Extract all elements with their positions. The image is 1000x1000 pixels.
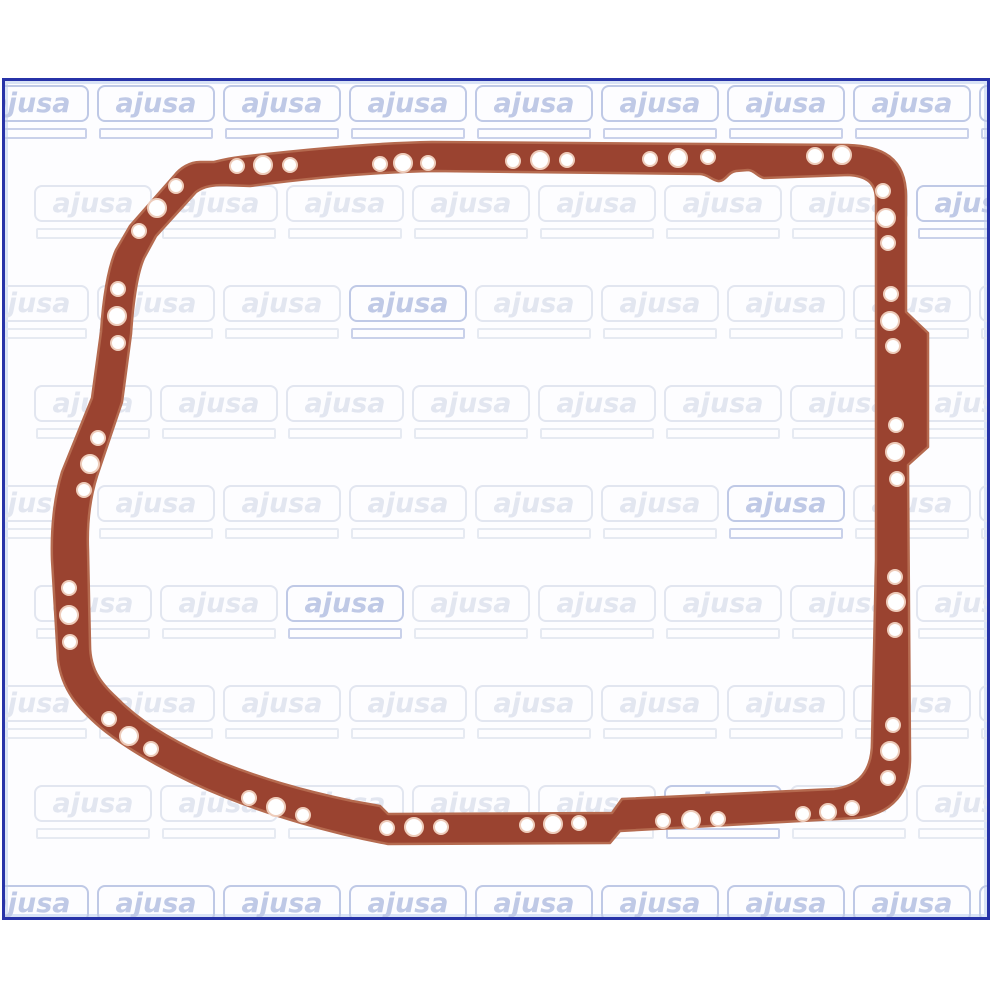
watermark-brand-text: ajusa [97, 485, 215, 522]
watermark-logo: ajusa [727, 285, 845, 339]
watermark-brand-text: ajusa [538, 585, 656, 622]
watermark-brand-text: ajusa [5, 285, 89, 322]
watermark-logo: ajusa [727, 485, 845, 539]
watermark-brand-text: ajusa [349, 85, 467, 122]
watermark-brand-text: ajusa [853, 485, 971, 522]
watermark-brand-text: ajusa [412, 385, 530, 422]
watermark-underline-bar [729, 528, 843, 539]
watermark-underline-bar [225, 128, 339, 139]
watermark-logo: ajusa [97, 885, 215, 917]
watermark-brand-text: ajusa [538, 185, 656, 222]
watermark-logo: ajusa [853, 485, 971, 539]
watermark-logo: ajusa [160, 185, 278, 239]
watermark-underline-bar [666, 828, 780, 839]
watermark-underline-bar [99, 528, 213, 539]
watermark-underline-bar [981, 328, 987, 339]
watermark-brand-text: ajusa [601, 685, 719, 722]
watermark-logo: ajusa [664, 585, 782, 639]
watermark-underline-bar [477, 328, 591, 339]
watermark-underline-bar [477, 528, 591, 539]
watermark-brand-text: ajusa [34, 185, 152, 222]
watermark-underline-bar [792, 228, 906, 239]
watermark-brand-text: ajusa [223, 285, 341, 322]
watermark-logo: ajusa [601, 685, 719, 739]
watermark-brand-text: ajusa [601, 885, 719, 917]
watermark-underline-bar [414, 228, 528, 239]
watermark-logo: ajusa [790, 385, 908, 439]
watermark-brand-text: ajusa [916, 785, 987, 822]
watermark-underline-bar [414, 428, 528, 439]
watermark-logo: ajusa [349, 85, 467, 139]
watermark-underline-bar [225, 728, 339, 739]
watermark-brand-text: ajusa [160, 385, 278, 422]
watermark-logo: ajusa [601, 285, 719, 339]
watermark-underline-bar [351, 528, 465, 539]
watermark-brand-text: ajusa [664, 585, 782, 622]
watermark-underline-bar [162, 428, 276, 439]
watermark-brand-text: ajusa [475, 85, 593, 122]
watermark-logo: ajusa [412, 585, 530, 639]
watermark-brand-text: ajusa [916, 585, 987, 622]
watermark-brand-text: ajusa [790, 585, 908, 622]
watermark-underline-bar [5, 728, 87, 739]
watermark-logo: ajusa [34, 785, 152, 839]
watermark-underline-bar [603, 728, 717, 739]
watermark-pattern: ajusaajusaajusaajusaajusaajusaajusaajusa… [5, 81, 987, 917]
watermark-logo: ajusa [475, 85, 593, 139]
watermark-logo: ajusa [97, 685, 215, 739]
watermark-underline-bar [603, 328, 717, 339]
watermark-brand-text: ajusa [286, 185, 404, 222]
watermark-logo: ajusa [160, 585, 278, 639]
watermark-underline-bar [855, 328, 969, 339]
watermark-logo: ajusa [853, 285, 971, 339]
watermark-underline-bar [288, 628, 402, 639]
watermark-underline-bar [36, 628, 150, 639]
watermark-brand-text: ajusa [538, 785, 656, 822]
watermark-logo: ajusa [916, 785, 987, 839]
watermark-brand-text: ajusa [601, 85, 719, 122]
watermark-brand-text: ajusa [727, 485, 845, 522]
watermark-logo: ajusa [5, 885, 89, 917]
watermark-logo: ajusa [538, 585, 656, 639]
watermark-brand-text: ajusa [727, 885, 845, 917]
watermark-underline-bar [540, 428, 654, 439]
watermark-logo: ajusa [349, 285, 467, 339]
watermark-logo: ajusa [979, 685, 987, 739]
watermark-brand-text: ajusa [349, 285, 467, 322]
watermark-logo: ajusa [223, 85, 341, 139]
watermark-brand-text: ajusa [979, 885, 987, 917]
watermark-brand-text: ajusa [979, 285, 987, 322]
watermark-logo: ajusa [160, 385, 278, 439]
watermark-brand-text: ajusa [160, 585, 278, 622]
watermark-brand-text: ajusa [916, 385, 987, 422]
watermark-brand-text: ajusa [727, 85, 845, 122]
watermark-underline-bar [729, 128, 843, 139]
watermark-logo: ajusa [412, 785, 530, 839]
watermark-brand-text: ajusa [664, 785, 782, 822]
watermark-underline-bar [918, 428, 987, 439]
watermark-logo: ajusa [916, 585, 987, 639]
watermark-brand-text: ajusa [349, 485, 467, 522]
watermark-brand-text: ajusa [979, 85, 987, 122]
watermark-brand-text: ajusa [349, 885, 467, 917]
watermark-brand-text: ajusa [790, 785, 908, 822]
watermark-logo: ajusa [916, 185, 987, 239]
watermark-logo: ajusa [349, 485, 467, 539]
watermark-logo: ajusa [160, 785, 278, 839]
watermark-brand-text: ajusa [5, 885, 89, 917]
watermark-logo: ajusa [538, 185, 656, 239]
watermark-brand-text: ajusa [223, 885, 341, 917]
watermark-brand-text: ajusa [286, 385, 404, 422]
watermark-underline-bar [729, 328, 843, 339]
watermark-brand-text: ajusa [475, 685, 593, 722]
watermark-logo: ajusa [601, 885, 719, 917]
watermark-brand-text: ajusa [97, 685, 215, 722]
watermark-brand-text: ajusa [475, 885, 593, 917]
watermark-logo: ajusa [97, 285, 215, 339]
watermark-underline-bar [288, 428, 402, 439]
watermark-brand-text: ajusa [727, 685, 845, 722]
watermark-logo: ajusa [5, 485, 89, 539]
watermark-brand-text: ajusa [223, 485, 341, 522]
product-photo-page: ajusaajusaajusaajusaajusaajusaajusaajusa… [0, 0, 1000, 1000]
watermark-brand-text: ajusa [286, 785, 404, 822]
watermark-underline-bar [225, 328, 339, 339]
watermark-underline-bar [855, 728, 969, 739]
watermark-logo: ajusa [34, 185, 152, 239]
watermark-logo: ajusa [538, 385, 656, 439]
watermark-logo: ajusa [727, 85, 845, 139]
watermark-logo: ajusa [34, 585, 152, 639]
watermark-brand-text: ajusa [160, 785, 278, 822]
watermark-underline-bar [981, 128, 987, 139]
watermark-underline-bar [981, 728, 987, 739]
watermark-logo: ajusa [727, 885, 845, 917]
watermark-underline-bar [162, 828, 276, 839]
watermark-underline-bar [540, 228, 654, 239]
watermark-brand-text: ajusa [538, 385, 656, 422]
watermark-underline-bar [855, 528, 969, 539]
watermark-brand-text: ajusa [601, 285, 719, 322]
watermark-underline-bar [36, 228, 150, 239]
watermark-logo: ajusa [664, 385, 782, 439]
watermark-logo: ajusa [979, 285, 987, 339]
watermark-underline-bar [5, 128, 87, 139]
watermark-brand-text: ajusa [97, 885, 215, 917]
watermark-underline-bar [603, 128, 717, 139]
watermark-brand-text: ajusa [853, 885, 971, 917]
watermark-underline-bar [414, 828, 528, 839]
watermark-underline-bar [5, 528, 87, 539]
watermark-logo: ajusa [5, 285, 89, 339]
watermark-logo: ajusa [223, 685, 341, 739]
watermark-logo: ajusa [853, 685, 971, 739]
watermark-brand-text: ajusa [664, 385, 782, 422]
watermark-logo: ajusa [853, 885, 971, 917]
watermark-logo: ajusa [601, 85, 719, 139]
watermark-brand-text: ajusa [853, 685, 971, 722]
watermark-brand-text: ajusa [160, 185, 278, 222]
watermark-brand-text: ajusa [475, 485, 593, 522]
watermark-underline-bar [351, 328, 465, 339]
watermark-logo: ajusa [790, 185, 908, 239]
watermark-logo: ajusa [223, 885, 341, 917]
watermark-logo: ajusa [916, 385, 987, 439]
watermark-logo: ajusa [286, 585, 404, 639]
watermark-brand-text: ajusa [601, 485, 719, 522]
watermark-logo: ajusa [979, 85, 987, 139]
watermark-brand-text: ajusa [97, 85, 215, 122]
watermark-logo: ajusa [286, 385, 404, 439]
watermark-brand-text: ajusa [97, 285, 215, 322]
watermark-logo: ajusa [349, 685, 467, 739]
watermark-logo: ajusa [412, 385, 530, 439]
watermark-logo: ajusa [475, 685, 593, 739]
watermark-underline-bar [288, 828, 402, 839]
watermark-brand-text: ajusa [979, 685, 987, 722]
watermark-brand-text: ajusa [664, 185, 782, 222]
watermark-logo: ajusa [34, 385, 152, 439]
watermark-underline-bar [36, 828, 150, 839]
watermark-underline-bar [855, 128, 969, 139]
watermark-brand-text: ajusa [34, 385, 152, 422]
watermark-underline-bar [351, 728, 465, 739]
watermark-logo: ajusa [349, 885, 467, 917]
watermark-logo: ajusa [223, 285, 341, 339]
photo-frame: ajusaajusaajusaajusaajusaajusaajusaajusa… [2, 78, 990, 920]
watermark-logo: ajusa [979, 485, 987, 539]
watermark-brand-text: ajusa [412, 185, 530, 222]
watermark-logo: ajusa [601, 485, 719, 539]
watermark-underline-bar [5, 328, 87, 339]
watermark-logo: ajusa [97, 85, 215, 139]
watermark-brand-text: ajusa [916, 185, 987, 222]
watermark-brand-text: ajusa [34, 785, 152, 822]
watermark-underline-bar [540, 828, 654, 839]
watermark-underline-bar [36, 428, 150, 439]
watermark-brand-text: ajusa [223, 85, 341, 122]
watermark-logo: ajusa [97, 485, 215, 539]
watermark-logo: ajusa [475, 485, 593, 539]
watermark-brand-text: ajusa [853, 285, 971, 322]
watermark-underline-bar [414, 628, 528, 639]
watermark-underline-bar [792, 828, 906, 839]
watermark-logo: ajusa [979, 885, 987, 917]
watermark-underline-bar [288, 228, 402, 239]
watermark-underline-bar [99, 128, 213, 139]
watermark-underline-bar [918, 628, 987, 639]
watermark-underline-bar [351, 128, 465, 139]
watermark-brand-text: ajusa [853, 85, 971, 122]
watermark-brand-text: ajusa [5, 485, 89, 522]
watermark-logo: ajusa [727, 685, 845, 739]
watermark-brand-text: ajusa [412, 585, 530, 622]
watermark-logo: ajusa [853, 85, 971, 139]
watermark-logo: ajusa [538, 785, 656, 839]
watermark-logo: ajusa [664, 785, 782, 839]
watermark-underline-bar [477, 128, 591, 139]
watermark-underline-bar [666, 228, 780, 239]
watermark-logo: ajusa [475, 885, 593, 917]
watermark-logo: ajusa [286, 785, 404, 839]
watermark-underline-bar [225, 528, 339, 539]
watermark-underline-bar [666, 628, 780, 639]
watermark-brand-text: ajusa [286, 585, 404, 622]
watermark-brand-text: ajusa [790, 385, 908, 422]
watermark-logo: ajusa [664, 185, 782, 239]
watermark-underline-bar [162, 228, 276, 239]
watermark-underline-bar [981, 528, 987, 539]
watermark-underline-bar [162, 628, 276, 639]
watermark-logo: ajusa [286, 185, 404, 239]
watermark-brand-text: ajusa [223, 685, 341, 722]
watermark-underline-bar [792, 628, 906, 639]
watermark-logo: ajusa [412, 185, 530, 239]
watermark-underline-bar [792, 428, 906, 439]
watermark-logo: ajusa [475, 285, 593, 339]
watermark-underline-bar [666, 428, 780, 439]
watermark-brand-text: ajusa [5, 685, 89, 722]
watermark-logo: ajusa [790, 785, 908, 839]
watermark-brand-text: ajusa [349, 685, 467, 722]
watermark-brand-text: ajusa [790, 185, 908, 222]
watermark-brand-text: ajusa [979, 485, 987, 522]
watermark-underline-bar [603, 528, 717, 539]
watermark-brand-text: ajusa [5, 85, 89, 122]
watermark-logo: ajusa [5, 85, 89, 139]
watermark-logo: ajusa [5, 685, 89, 739]
watermark-underline-bar [540, 628, 654, 639]
watermark-brand-text: ajusa [475, 285, 593, 322]
watermark-brand-text: ajusa [727, 285, 845, 322]
watermark-underline-bar [99, 728, 213, 739]
watermark-underline-bar [918, 228, 987, 239]
watermark-logo: ajusa [790, 585, 908, 639]
watermark-underline-bar [729, 728, 843, 739]
watermark-underline-bar [918, 828, 987, 839]
watermark-underline-bar [477, 728, 591, 739]
watermark-brand-text: ajusa [412, 785, 530, 822]
watermark-underline-bar [99, 328, 213, 339]
watermark-logo: ajusa [223, 485, 341, 539]
watermark-brand-text: ajusa [34, 585, 152, 622]
